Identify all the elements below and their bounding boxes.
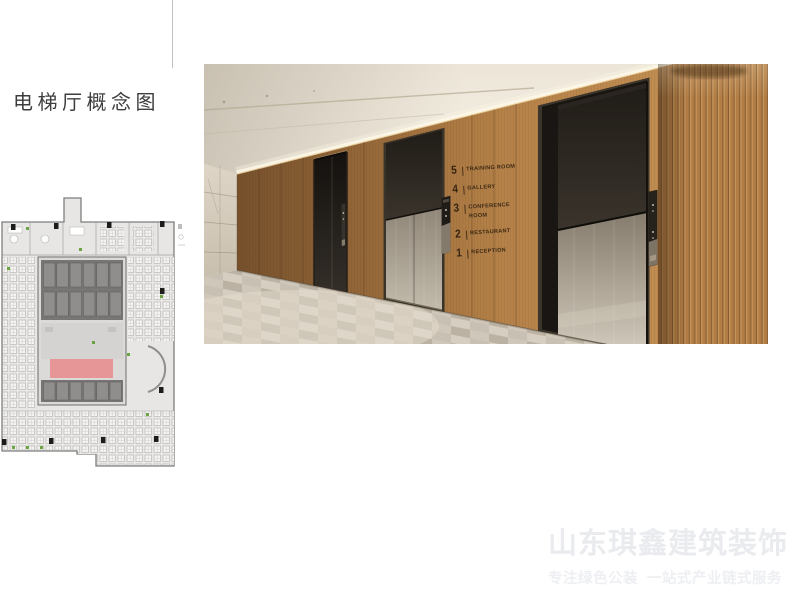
floor-plan-thumbnail <box>0 193 192 473</box>
directory-row: 1 RECEPTION <box>456 245 536 260</box>
watermark-tagline: 专注绿色公装 一站式产业链式服务 <box>548 567 788 588</box>
elevator-2-call-panel <box>442 196 451 254</box>
plan-highlight-elevator-hall <box>50 359 113 378</box>
plan-workstations-right <box>128 257 174 341</box>
divider-bar <box>466 231 468 240</box>
wood-slat-wall <box>658 64 768 344</box>
divider-bar <box>464 205 466 214</box>
title-divider-line <box>172 0 173 68</box>
plan-workstations-left <box>3 257 36 409</box>
elevator-2-door <box>384 128 445 312</box>
directory-sign: 5 TRAINING ROOM 4 GALLERY 3 CONFERENCE R… <box>451 162 537 269</box>
elevator-3-door <box>538 78 650 345</box>
watermark: 山东琪鑫建筑装饰 专注绿色公装 一站式产业链式服务 <box>548 520 788 588</box>
directory-row: 3 CONFERENCE ROOM <box>453 200 534 222</box>
floor-label: GALLERY <box>467 181 519 193</box>
concept-render-photo: 5 TRAINING ROOM 4 GALLERY 3 CONFERENCE R… <box>204 64 768 344</box>
directory-row: 2 RESTAURANT <box>455 226 535 241</box>
divider-bar <box>462 167 464 176</box>
floor-number: 5 <box>451 165 462 177</box>
divider-bar <box>467 250 469 259</box>
floor-number: 3 <box>453 203 464 215</box>
elevator-3-call-panel <box>649 190 657 267</box>
downlight <box>313 90 315 92</box>
floor-number: 4 <box>452 184 463 196</box>
floor-plan-svg <box>0 193 192 473</box>
downlight <box>223 101 226 104</box>
floor-label: RESTAURANT <box>470 226 522 238</box>
directory-row: 4 GALLERY <box>452 181 532 196</box>
plan-legend-marks <box>178 224 185 245</box>
floor-label: TRAINING ROOM <box>466 162 518 174</box>
stone-wall <box>204 164 237 277</box>
plan-workstations-bottom <box>3 411 174 465</box>
watermark-brand: 山东琪鑫建筑装饰 <box>548 520 788 562</box>
floor-label: RECEPTION <box>471 245 523 257</box>
divider-bar <box>463 186 465 195</box>
floor-number: 2 <box>455 229 466 241</box>
page-title: 电梯厅概念图 <box>13 86 160 115</box>
floor-number: 1 <box>456 248 467 260</box>
elevator-1-call-panel <box>341 203 345 248</box>
downlight <box>266 95 268 97</box>
floor-label: CONFERENCE ROOM <box>468 200 521 220</box>
